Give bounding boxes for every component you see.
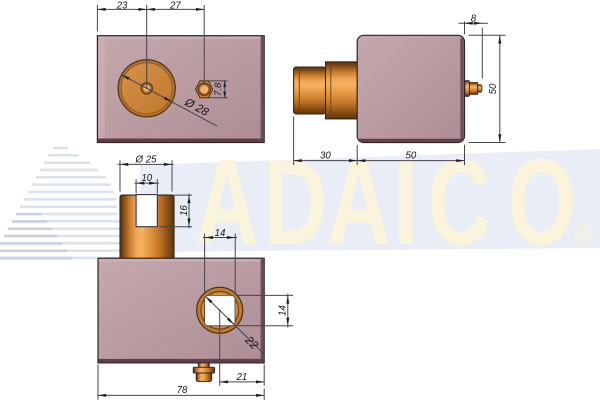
svg-text:ADAICO: ADAICO	[195, 134, 576, 271]
svg-text:27: 27	[169, 0, 181, 11]
svg-text:78: 78	[177, 385, 188, 396]
svg-text:7.8: 7.8	[213, 82, 224, 96]
svg-text:10: 10	[141, 173, 152, 184]
svg-text:14: 14	[215, 228, 226, 239]
svg-text:50: 50	[406, 151, 417, 162]
svg-text:Ø 25: Ø 25	[134, 155, 157, 166]
svg-text:8: 8	[471, 14, 477, 25]
svg-text:16: 16	[179, 205, 190, 216]
svg-text:21: 21	[236, 372, 248, 383]
svg-text:50: 50	[488, 83, 499, 94]
svg-text:30: 30	[320, 151, 331, 162]
svg-text:23: 23	[116, 0, 128, 11]
svg-text:R: R	[579, 228, 588, 242]
svg-text:14: 14	[277, 305, 288, 316]
